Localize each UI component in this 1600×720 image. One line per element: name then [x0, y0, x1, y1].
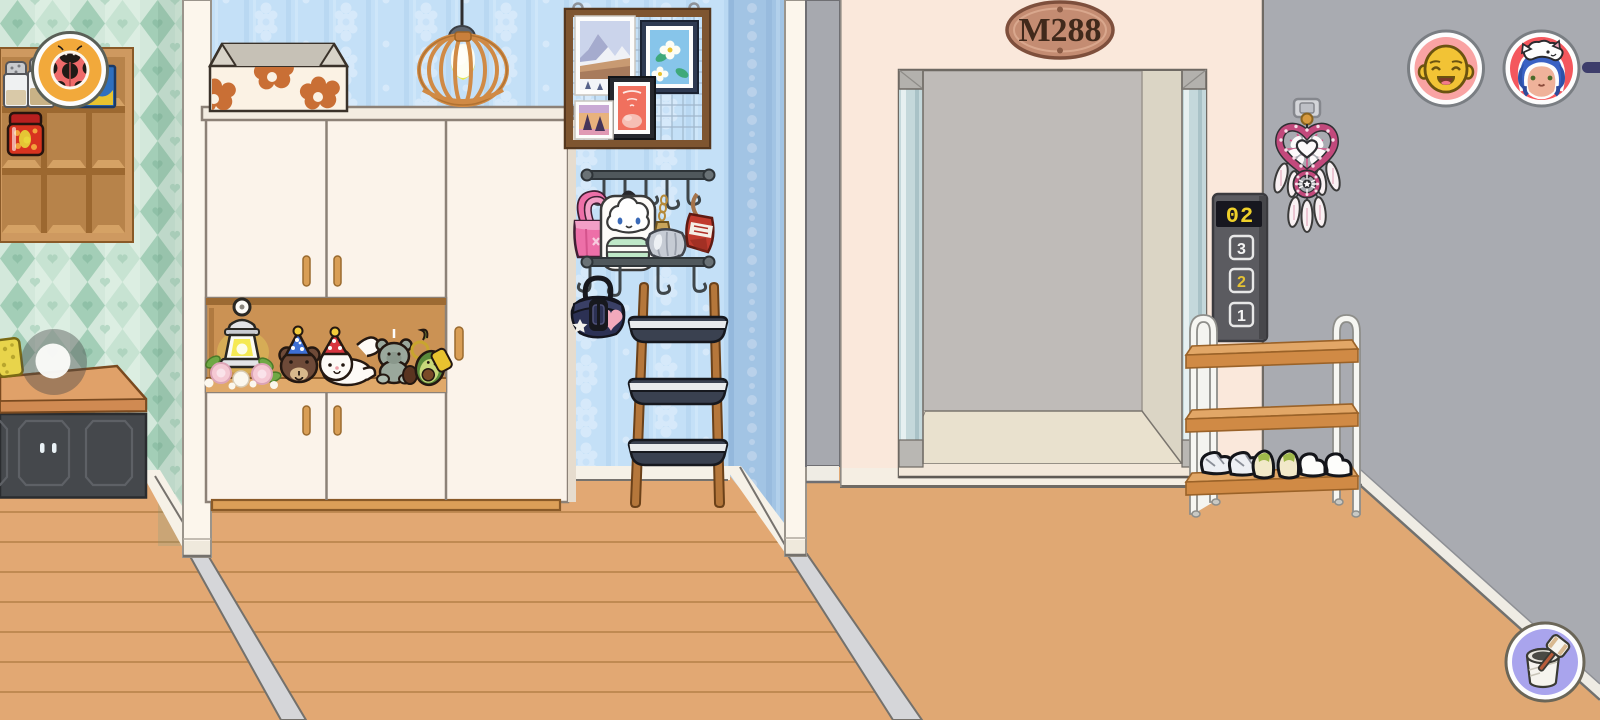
- svg-text:M288: M288: [1018, 12, 1101, 49]
- svg-text:3: 3: [1237, 241, 1246, 258]
- svg-text:02: 02: [1226, 204, 1254, 229]
- svg-text:1: 1: [1237, 308, 1246, 325]
- svg-text:2: 2: [1237, 274, 1246, 291]
